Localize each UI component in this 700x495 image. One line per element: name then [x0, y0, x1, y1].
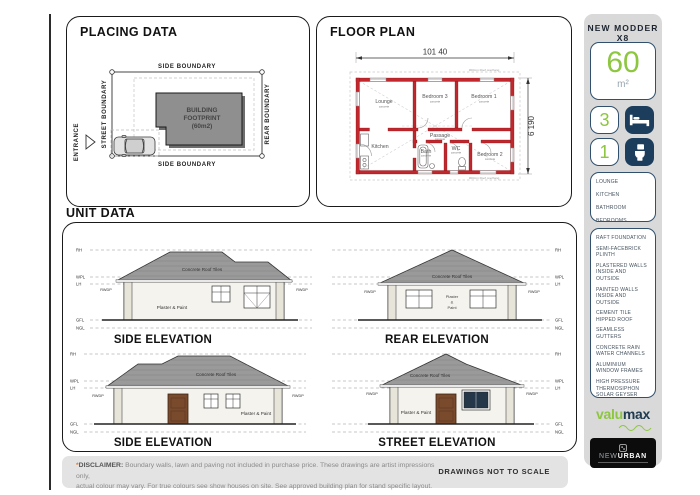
valumax-tagline-flourish [618, 424, 652, 431]
rwdp-label: RWDP [92, 394, 104, 398]
newurban-emblem-icon [619, 444, 627, 452]
pilaster [274, 387, 282, 424]
svg-text:GFL: GFL [76, 318, 85, 323]
svg-text:Plaster: Plaster [446, 294, 459, 299]
room-item: KITCHEN [596, 192, 650, 199]
model-name: NEW MODDER X8 [584, 23, 662, 43]
window [212, 286, 230, 302]
roof-label: Concrete Roof Tiles [182, 267, 223, 272]
room-item: BEDROOMS [596, 218, 650, 225]
svg-text:101 40: 101 40 [423, 48, 448, 57]
svg-text:RH: RH [555, 248, 561, 253]
bedroom-count-box: 3 [590, 106, 619, 134]
height-dimension: 6 190 [518, 78, 536, 174]
svg-text:GFL: GFL [555, 318, 564, 323]
svg-text:BUILDING: BUILDING [187, 107, 218, 114]
elevation-caption: STREET ELEVATION [357, 437, 517, 449]
bathroom-count: 1 [591, 142, 618, 162]
feature-item: CONCRETE RAIN WATER CHANNELS [596, 345, 650, 358]
rwdp-label: RWDP [366, 392, 378, 396]
feature-item: HIGH PRESSURE THERMOSIPHON SOLAR GEYSER [596, 379, 650, 399]
svg-text:concrete: concrete [479, 100, 490, 104]
svg-text:Bedroom 1: Bedroom 1 [471, 94, 496, 100]
elevation-rear: RH WPL LH GFL NGL Concrete Roof Tiles Pl [318, 240, 570, 334]
disclaimer-text: *DISCLAIMER: Boundary walls, lawn and pa… [76, 461, 436, 493]
room-item: LOUNGE [596, 179, 650, 186]
area-value: 60 [591, 48, 655, 78]
disclaimer-line1: Boundary walls, lawn and paving not incl… [76, 462, 434, 480]
area-box: 60 m² [590, 42, 656, 100]
entrance-arrow-icon [86, 135, 95, 149]
window [204, 394, 218, 408]
newurban-logo: NEWURBAN [590, 438, 656, 468]
feature-item: PLASTERED WALLS INSIDE AND OUTSIDE [596, 263, 650, 283]
feature-item: SEAMLESS GUTTERS [596, 327, 650, 340]
bed-icon [629, 113, 650, 127]
toilet-icon-box [625, 138, 654, 166]
newurban-new: NEW [599, 453, 618, 460]
wall-label: Plaster & Paint [241, 411, 272, 416]
window [226, 394, 240, 408]
walls [114, 387, 282, 424]
placing-data-title: PLACING DATA [80, 25, 177, 39]
elevation-side-2: RH WPL LH GFL NGL Concrete Roof Tiles [66, 344, 318, 438]
wall-label: Plaster & Paint [401, 410, 432, 415]
svg-text:RH: RH [555, 352, 561, 357]
pilaster [390, 386, 398, 424]
rear-boundary-label: REAR BOUNDARY [265, 84, 271, 145]
street-boundary-label: STREET BOUNDARY [102, 80, 108, 149]
fascia [378, 283, 526, 286]
newurban-urban: URBAN [618, 453, 647, 460]
unit-data-title: UNIT DATA [66, 206, 135, 220]
spec-sidebar: NEW MODDER X8 60 m² 3 1 [584, 14, 662, 466]
svg-text:Lounge: Lounge [375, 99, 392, 105]
svg-text:(60m2): (60m2) [192, 123, 213, 130]
svg-text:&: & [451, 300, 454, 305]
newurban-tagline [598, 462, 648, 463]
bed-icon-box [625, 106, 654, 134]
svg-text:Kitchen: Kitchen [371, 144, 388, 150]
rwdp-label: RWDP [364, 290, 376, 294]
svg-text:WPL: WPL [70, 379, 80, 384]
svg-text:concrete: concrete [379, 105, 390, 109]
roof-label: Concrete Roof Tiles [410, 373, 451, 378]
page-edge-line [49, 14, 51, 490]
svg-text:WPL: WPL [555, 275, 565, 280]
window [462, 390, 490, 410]
fascia [106, 386, 290, 389]
door [436, 394, 456, 424]
width-dimension: 101 40 [356, 48, 514, 64]
svg-text:LH: LH [555, 386, 560, 391]
bathroom-count-box: 1 [590, 138, 619, 166]
door [168, 394, 188, 424]
car [114, 136, 155, 157]
rooms-list-box: LOUNGE KITCHEN BATHROOM BEDROOMS [590, 172, 656, 222]
svg-text:RH: RH [76, 248, 82, 253]
elevation-side-1: RH WPL LH GFL NGL Concrete Roof Tiles [72, 240, 324, 334]
pilaster [508, 284, 516, 320]
room-item: BATHROOM [596, 205, 650, 212]
svg-text:FOOTPRINT: FOOTPRINT [184, 115, 221, 122]
not-to-scale-note: DRAWINGS NOT TO SCALE [438, 467, 550, 476]
pilaster [276, 281, 284, 320]
svg-text:LH: LH [70, 386, 75, 391]
svg-text:concrete: concrete [435, 137, 446, 141]
svg-text:WPL: WPL [555, 379, 565, 384]
rwdp-label: RWDP [100, 288, 112, 292]
fascia [380, 385, 524, 388]
svg-text:GFL: GFL [70, 422, 79, 427]
svg-text:NGL: NGL [555, 326, 564, 331]
brochure-sheet: PLACING DATA SIDE BOUNDARY SIDE BOUNDARY… [0, 0, 700, 495]
window [244, 286, 270, 308]
svg-text:Bedroom 3: Bedroom 3 [422, 94, 447, 100]
feature-item: PAINTED WALLS INSIDE AND OUTSIDE [596, 287, 650, 307]
roof-label: Concrete Roof Tiles [432, 274, 473, 279]
roof-label: Concrete Roof Tiles [196, 372, 237, 377]
pilaster [114, 387, 122, 424]
wall-label: Plaster & Paint [157, 305, 188, 310]
rwdp-label: RWDP [292, 394, 304, 398]
overhang-note-bottom: 300mm Roof overhang [469, 176, 500, 180]
svg-text:concrete: concrete [485, 157, 496, 161]
svg-text:concrete: concrete [430, 100, 441, 104]
pilaster [388, 284, 396, 320]
overhang-note-top: 300mm Roof overhang [469, 68, 500, 72]
footer-bar: *DISCLAIMER: Boundary walls, lawn and pa… [62, 456, 568, 488]
disclaimer-line2: actual colour may vary. For true colours… [76, 483, 432, 490]
feature-item: ALUMINIUM WINDOW FRAMES [596, 362, 650, 375]
toilet-icon [632, 143, 647, 162]
svg-text:NGL: NGL [70, 430, 79, 435]
elevation-street: RH WPL LH GFL NGL Concrete Roof Tiles Pl… [318, 344, 570, 438]
fascia [116, 280, 292, 283]
window [406, 290, 432, 308]
disclaimer-label: DISCLAIMER: [79, 462, 124, 469]
svg-text:NGL: NGL [555, 430, 564, 435]
svg-text:LH: LH [76, 282, 81, 287]
svg-text:concrete: concrete [451, 151, 462, 155]
svg-text:GFL: GFL [555, 422, 564, 427]
floor-plan-drawing: 101 40 6 190 300mm Roof overhang 300mm R… [322, 36, 562, 200]
rwdp-label: RWDP [526, 392, 538, 396]
side-boundary-bottom-label: SIDE BOUNDARY [158, 162, 216, 168]
pilaster [124, 281, 132, 320]
feature-item: RAFT FOUNDATION [596, 235, 650, 242]
area-unit: m² [591, 79, 655, 90]
svg-text:NGL: NGL [76, 326, 85, 331]
svg-text:LH: LH [555, 282, 560, 287]
svg-text:concrete: concrete [421, 154, 432, 158]
bedroom-count: 3 [591, 110, 618, 130]
svg-text:WPL: WPL [76, 275, 86, 280]
svg-text:RH: RH [70, 352, 76, 357]
entrance-label: ENTRANCE [74, 123, 80, 161]
feature-item: CEMENT TILE HIPPED ROOF [596, 310, 650, 323]
valumax-logo: valumax [584, 406, 662, 431]
svg-text:Paint: Paint [447, 305, 457, 310]
window [470, 290, 496, 308]
rwdp-label: RWDP [528, 290, 540, 294]
rwdp-label: RWDP [296, 288, 308, 292]
elevation-caption: SIDE ELEVATION [83, 437, 243, 449]
site-plan: SIDE BOUNDARY SIDE BOUNDARY STREET BOUND… [70, 40, 304, 200]
pilaster [506, 386, 514, 424]
valumax-max: max [623, 406, 650, 422]
svg-text:6 190: 6 190 [527, 115, 536, 136]
feature-item: SEMI-FACEBRICK PLINTH [596, 246, 650, 259]
features-list-box: RAFT FOUNDATION SEMI-FACEBRICK PLINTH PL… [590, 228, 656, 398]
valumax-valu: valu [596, 406, 623, 422]
side-boundary-top-label: SIDE BOUNDARY [158, 64, 216, 70]
